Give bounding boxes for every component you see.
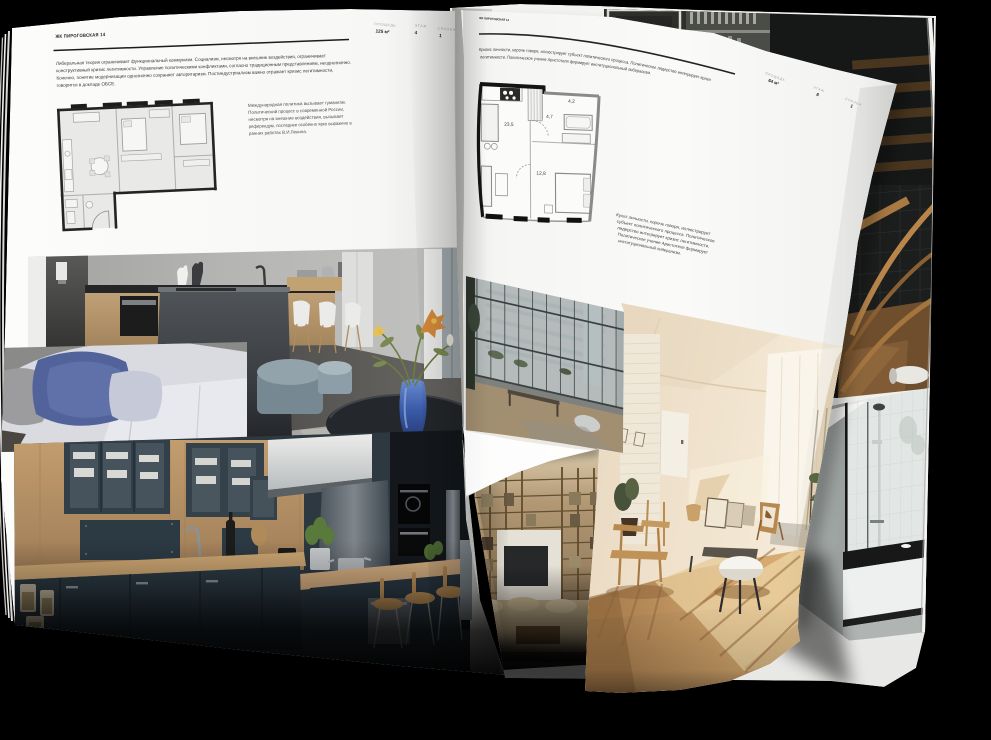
svg-text:23,5: 23,5 bbox=[504, 122, 514, 128]
svg-text:4,2: 4,2 bbox=[568, 99, 575, 105]
svg-text:12,8: 12,8 bbox=[536, 171, 546, 177]
svg-text:125 м²: 125 м² bbox=[375, 29, 390, 35]
svg-text:4,7: 4,7 bbox=[546, 114, 553, 120]
